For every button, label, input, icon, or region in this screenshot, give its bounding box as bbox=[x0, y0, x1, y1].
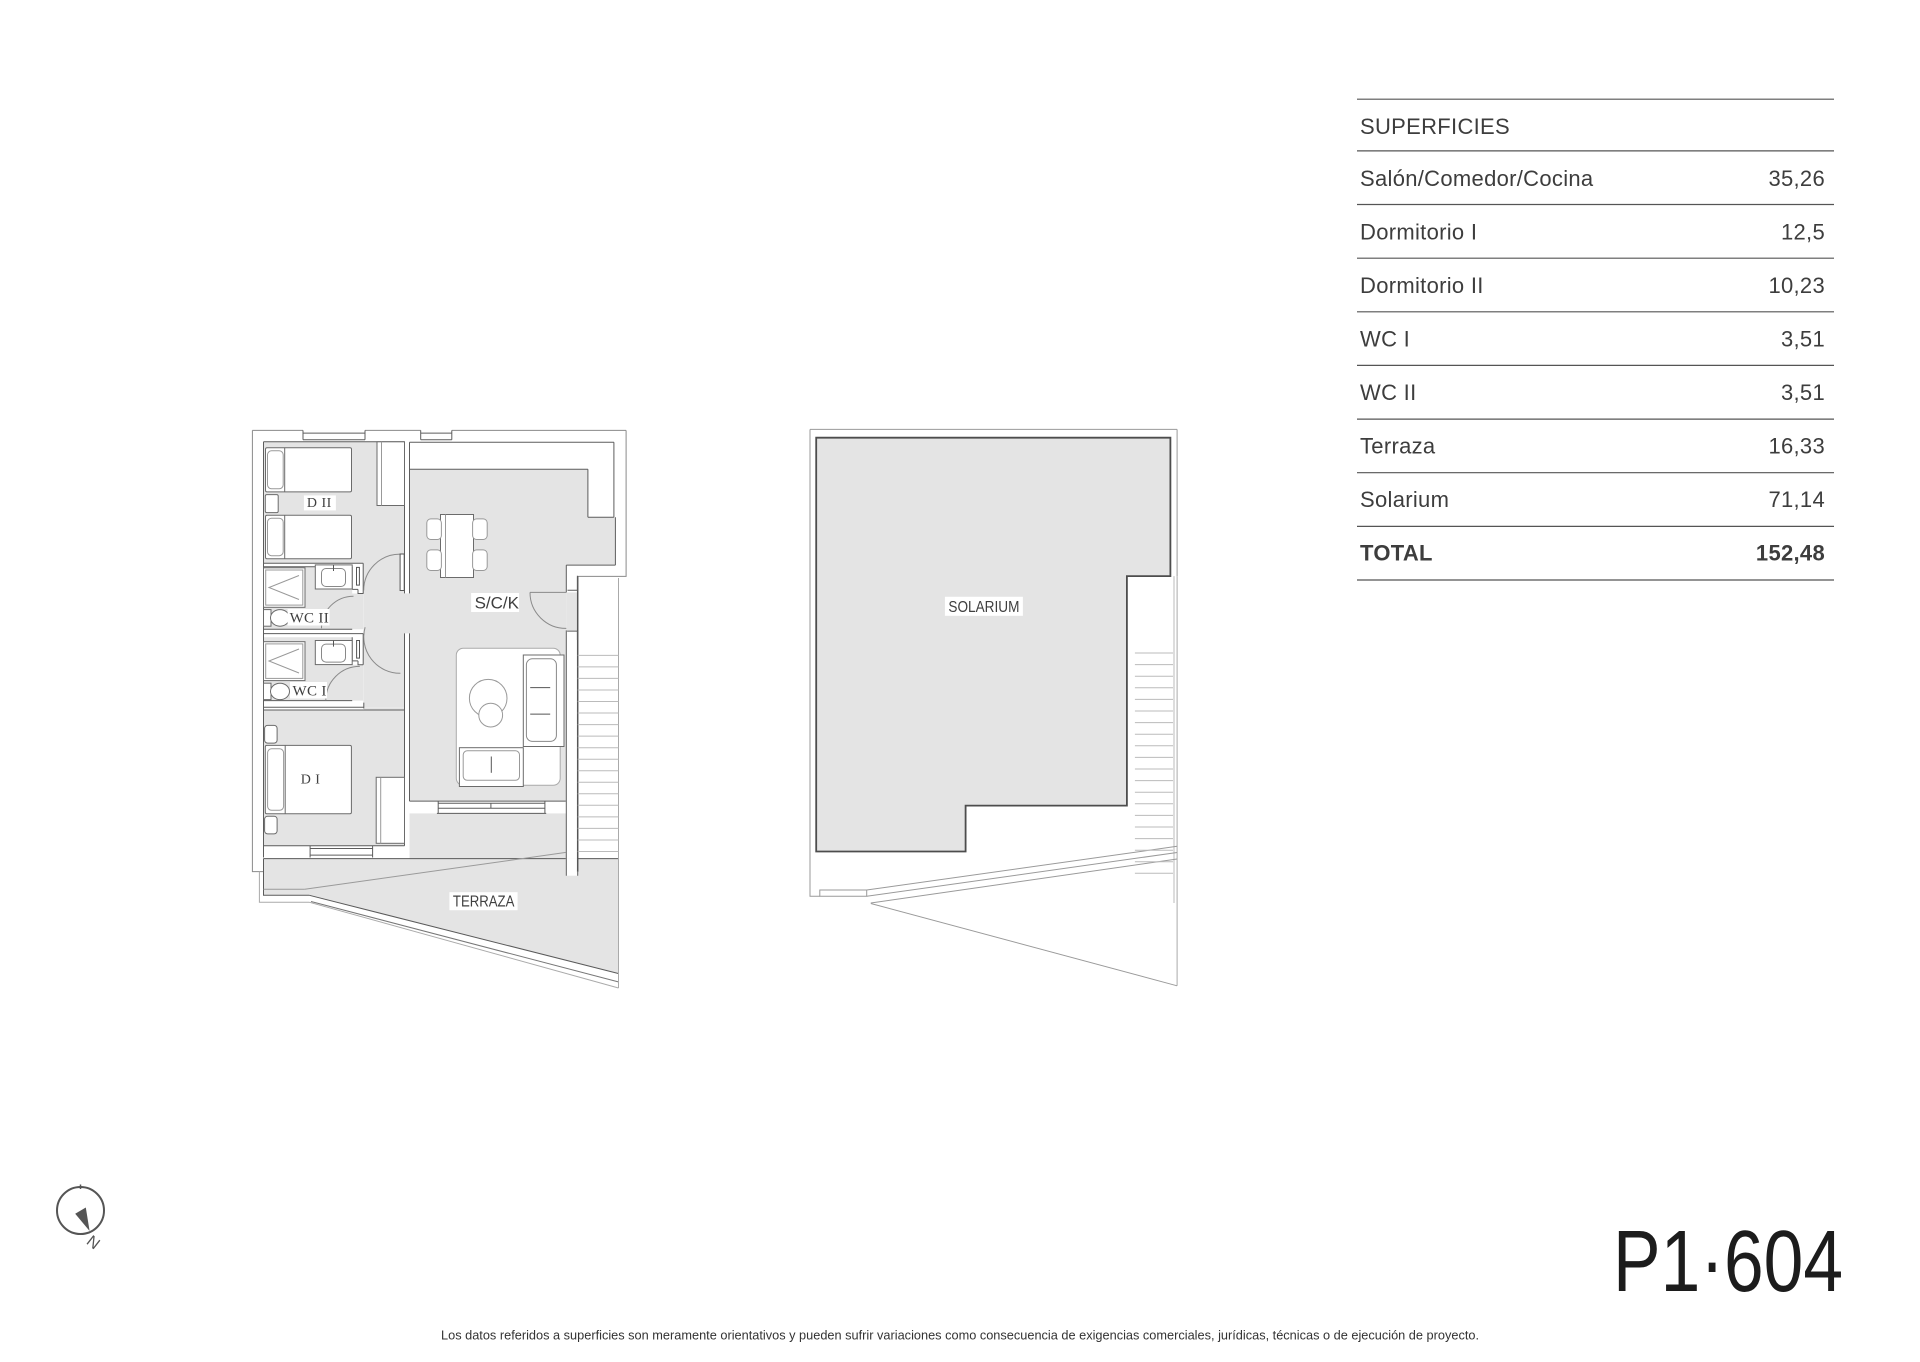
svg-text:Terraza: Terraza bbox=[1360, 434, 1436, 459]
svg-text:WC II: WC II bbox=[290, 611, 329, 627]
svg-text:35,26: 35,26 bbox=[1768, 166, 1825, 191]
svg-text:WC II: WC II bbox=[1360, 380, 1417, 405]
svg-text:TERRAZA: TERRAZA bbox=[453, 894, 515, 911]
svg-text:16,33: 16,33 bbox=[1768, 434, 1825, 459]
svg-text:Dormitorio II: Dormitorio II bbox=[1360, 273, 1484, 298]
svg-text:SUPERFICIES: SUPERFICIES bbox=[1360, 114, 1510, 139]
svg-text:152,48: 152,48 bbox=[1756, 541, 1825, 566]
svg-text:P1·604: P1·604 bbox=[1613, 1213, 1843, 1310]
svg-text:WC I: WC I bbox=[293, 684, 327, 700]
svg-text:Salón/Comedor/Cocina: Salón/Comedor/Cocina bbox=[1360, 166, 1594, 191]
svg-text:12,5: 12,5 bbox=[1781, 220, 1825, 245]
svg-text:S/C/K: S/C/K bbox=[475, 593, 520, 612]
svg-text:WC I: WC I bbox=[1360, 327, 1410, 352]
svg-text:3,51: 3,51 bbox=[1781, 327, 1825, 352]
svg-text:D I: D I bbox=[301, 772, 321, 787]
svg-text:SOLARIUM: SOLARIUM bbox=[948, 599, 1019, 616]
svg-text:Dormitorio I: Dormitorio I bbox=[1360, 220, 1477, 245]
svg-text:Solarium: Solarium bbox=[1360, 487, 1449, 512]
svg-text:Los datos referidos a superfic: Los datos referidos a superficies son me… bbox=[441, 1328, 1479, 1343]
svg-text:3,51: 3,51 bbox=[1781, 380, 1825, 405]
svg-text:71,14: 71,14 bbox=[1768, 487, 1825, 512]
svg-text:TOTAL: TOTAL bbox=[1360, 541, 1433, 566]
svg-text:10,23: 10,23 bbox=[1768, 273, 1825, 298]
svg-text:D II: D II bbox=[307, 496, 332, 511]
